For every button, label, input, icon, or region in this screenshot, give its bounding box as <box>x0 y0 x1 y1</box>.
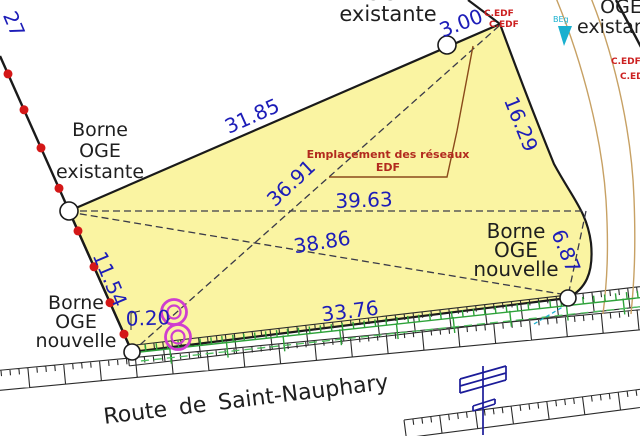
dim-diag-mid: 39.63 <box>335 187 393 213</box>
power-pole-symbol <box>460 366 506 435</box>
label-borne-oge-nouvelle-right: Borne OGE nouvelle <box>473 222 558 279</box>
label-oge-existante-top: OGE existante <box>339 0 436 25</box>
survey-dot <box>55 184 64 193</box>
survey-dot <box>74 226 83 235</box>
label-c-edf-1: C.EDF <box>484 9 514 19</box>
cyan-marker-label: BEg <box>553 15 569 24</box>
label-borne-oge-existante-left: Borne OGE existante <box>56 120 144 183</box>
label-c-edf-3: C.EDF <box>611 57 640 67</box>
label-c-edf-4: C.EDF <box>620 72 640 82</box>
label-c-edf-2: C.EDF <box>489 20 519 30</box>
dim-small-offset: 0.20 <box>125 305 170 331</box>
label-borne-oge-nouvelle-left: Borne OGE nouvelle <box>36 294 117 351</box>
road-hatch-band-far <box>404 388 640 436</box>
survey-plan-canvas: { "street": { "name": "Route de Saint-Na… <box>0 0 640 436</box>
label-oge-existante-right: OGE existante <box>577 0 640 37</box>
survey-dot <box>4 69 13 78</box>
label-edf-annotation: Emplacement des réseaux EDF <box>307 148 470 174</box>
survey-dot <box>120 330 129 339</box>
survey-dot <box>37 143 46 152</box>
cadastral-plan-drawing: BEg <box>0 0 640 436</box>
survey-dot <box>20 105 29 114</box>
